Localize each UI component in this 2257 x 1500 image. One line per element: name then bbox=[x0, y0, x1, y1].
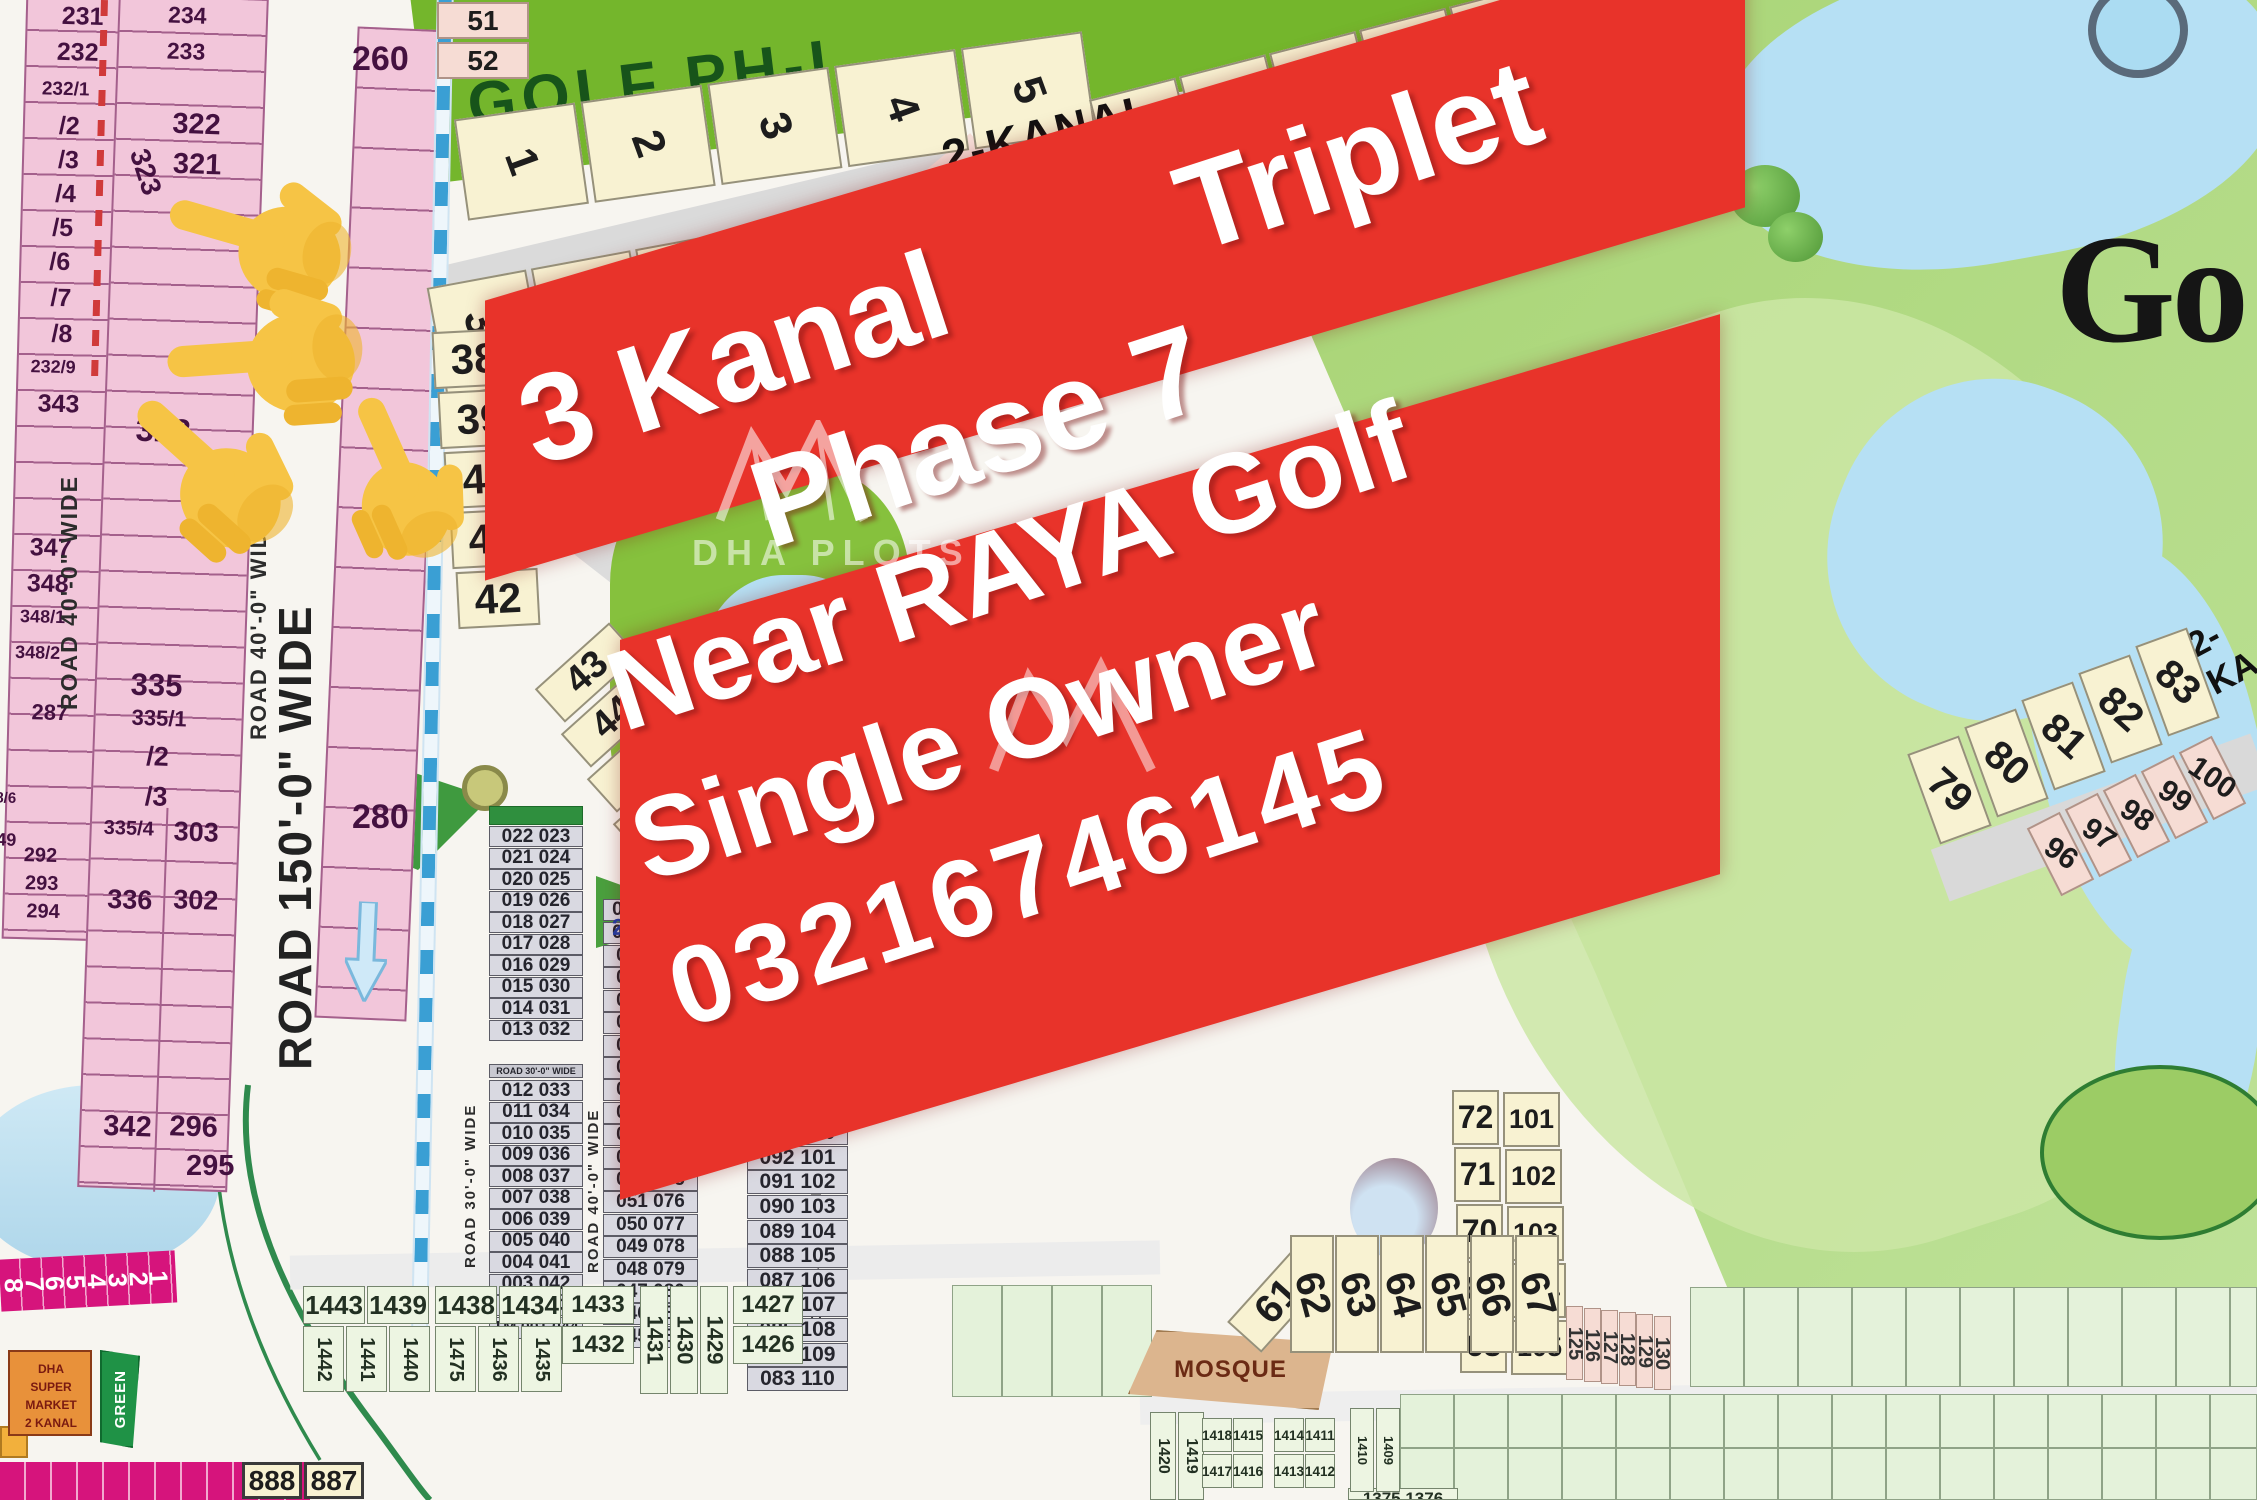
plot-cell: 1433 bbox=[562, 1286, 634, 1324]
plot-cell: 1415 bbox=[1233, 1418, 1263, 1452]
plot-cell: /3 bbox=[58, 148, 80, 174]
plot-cell: 1 bbox=[454, 103, 589, 221]
plot-cell: 005 040 bbox=[489, 1231, 583, 1252]
plot-cell: 231 bbox=[61, 4, 103, 30]
plot-cell: 011 034 bbox=[489, 1102, 583, 1123]
plot-cell: 348/2 bbox=[15, 643, 61, 662]
plot-cell: 101 bbox=[1503, 1092, 1560, 1147]
plot-cell: 051 076 bbox=[603, 1191, 698, 1213]
dha-plot-map: Go GOLF PH-I 231232232/1/2/3/4/5/6/7/823… bbox=[0, 0, 2257, 1500]
plot-cell: 006 039 bbox=[489, 1209, 583, 1230]
plot-cell: 014 031 bbox=[489, 998, 583, 1019]
plot-cell: 015 030 bbox=[489, 977, 583, 998]
plot-cell: 1409 bbox=[1376, 1408, 1400, 1492]
plot-cell: 102 bbox=[1505, 1149, 1562, 1204]
plot-cell: 64 bbox=[1380, 1235, 1424, 1353]
plot-cell: 089 104 bbox=[747, 1220, 848, 1244]
plot-cell: 083 110 bbox=[747, 1367, 848, 1391]
green-box: GREEN bbox=[100, 1350, 140, 1448]
plot-cell: 091 102 bbox=[747, 1170, 848, 1194]
road-label-40-left: ROAD 40'-0" WIDE bbox=[56, 380, 83, 710]
road-label-40-t2: ROAD 40'-0" WIDE bbox=[585, 1078, 602, 1273]
plot-cell: 010 035 bbox=[489, 1123, 583, 1144]
green-box-label: GREEN bbox=[112, 1370, 129, 1428]
plot-cell: 336 bbox=[107, 886, 153, 915]
plot-cell: /2 bbox=[59, 114, 81, 140]
plot-cell: 3 bbox=[707, 67, 842, 185]
plot-cell: /7 bbox=[50, 286, 72, 312]
plot-cell: 302 bbox=[173, 886, 219, 915]
plots-grid bbox=[952, 1285, 1152, 1397]
plot-cell: 1418 bbox=[1202, 1418, 1232, 1452]
plot-cell: 130 bbox=[1654, 1316, 1671, 1390]
plot-cell: 016 029 bbox=[489, 955, 583, 976]
plot-cell: 1416 bbox=[1233, 1454, 1263, 1488]
plot-cell: 020 025 bbox=[489, 869, 583, 890]
plot-cell: 1419 bbox=[1178, 1412, 1204, 1500]
plot-cell: 66 bbox=[1470, 1235, 1514, 1353]
plot-cell: 1426 bbox=[733, 1326, 803, 1364]
plots-grid bbox=[1690, 1287, 2257, 1387]
plot-cell: 2 bbox=[581, 85, 716, 203]
plot-cell: 1435 bbox=[521, 1326, 562, 1392]
road-label-30-t1: ROAD 30'-0" WIDE bbox=[462, 1078, 479, 1268]
plot-cell: 1431 bbox=[640, 1286, 668, 1394]
plot-cell: 017 028 bbox=[489, 934, 583, 955]
plot-cell: 293 bbox=[25, 873, 59, 894]
plot-cell: 232/1 bbox=[42, 79, 90, 99]
plot-cell: 888 bbox=[242, 1462, 302, 1499]
plot-cell: 009 036 bbox=[489, 1145, 583, 1166]
plot-cell: 1411 bbox=[1305, 1418, 1335, 1452]
plot-cell: 232/9 bbox=[30, 357, 76, 376]
plot-cell: 49 bbox=[0, 830, 16, 849]
dha-super-market: DHASUPERMARKET2 KANAL bbox=[8, 1350, 92, 1436]
plot-cell: 1 bbox=[147, 1256, 169, 1299]
plot-cell: 51 bbox=[437, 2, 529, 39]
plot-cell: 1427 bbox=[733, 1286, 803, 1324]
plot-cell: /6 bbox=[49, 250, 71, 276]
plot-cell: 050 077 bbox=[603, 1214, 698, 1236]
plot-cell: 303 bbox=[173, 818, 219, 847]
plot-label-295: 295 bbox=[186, 1152, 234, 1181]
plot-cell: 1432 bbox=[562, 1326, 634, 1364]
plot-cell: /3 bbox=[144, 783, 167, 811]
plot-cell: 1412 bbox=[1305, 1454, 1335, 1488]
plot-cell: 013 032 bbox=[489, 1020, 583, 1041]
plot-cell: 022 023 bbox=[489, 826, 583, 847]
plot-cell: 1420 bbox=[1150, 1412, 1176, 1500]
plot-cell: 1430 bbox=[670, 1286, 698, 1394]
plot-cell: 1436 bbox=[478, 1326, 519, 1392]
plot-cell: 52 bbox=[437, 42, 529, 79]
plot-cell: 1414 bbox=[1274, 1418, 1304, 1452]
plot-cell: 67 bbox=[1515, 1235, 1559, 1353]
plot-cell: 088 105 bbox=[747, 1244, 848, 1268]
plot-cell: 63 bbox=[1335, 1235, 1379, 1353]
plot-cell: 1413 bbox=[1274, 1454, 1304, 1488]
table1-header bbox=[489, 806, 583, 825]
plot-cell: 049 078 bbox=[603, 1236, 698, 1258]
plot-cell: 292 bbox=[24, 845, 58, 866]
plot-cell: 71 bbox=[1454, 1147, 1501, 1202]
plot-cell: 048 079 bbox=[603, 1259, 698, 1281]
strip-divider bbox=[153, 808, 168, 1192]
plot-cell: 004 041 bbox=[489, 1252, 583, 1273]
dha-plots-watermark-icon bbox=[712, 420, 872, 525]
plot-cell: 1439 bbox=[367, 1286, 429, 1324]
plot-cell: 65 bbox=[1425, 1235, 1469, 1353]
plot-cell: 232 bbox=[57, 40, 99, 66]
plot-cell: 294 bbox=[26, 901, 60, 922]
plot-cell: 887 bbox=[304, 1462, 364, 1499]
plot-cell: 019 026 bbox=[489, 891, 583, 912]
plot-cell: 012 033 bbox=[489, 1080, 583, 1101]
plot-label-280: 280 bbox=[352, 800, 409, 834]
plot-cell: 335/1 bbox=[131, 707, 187, 731]
plot-cell: 1440 bbox=[389, 1326, 430, 1392]
plot-cell: 62 bbox=[1290, 1235, 1334, 1353]
dha-plots-watermark-icon bbox=[985, 648, 1160, 788]
dha-plots-watermark-text: DHA PLOTS bbox=[692, 532, 971, 574]
plot-cell: 1438 bbox=[435, 1286, 497, 1324]
plot-cell: /2 bbox=[146, 743, 169, 771]
tee-circle bbox=[462, 765, 508, 811]
plot-cell: 8/6 bbox=[0, 790, 16, 806]
plot-cell: 1429 bbox=[700, 1286, 728, 1394]
plot-cell: 007 038 bbox=[489, 1188, 583, 1209]
plot-cell: 1475 bbox=[435, 1326, 476, 1392]
road-label-150: ROAD 150'-0" WIDE bbox=[268, 470, 322, 1070]
plot-cell: 1441 bbox=[346, 1326, 387, 1392]
market-label-line: 2 KANAL bbox=[12, 1414, 90, 1431]
plot-cell: 72 bbox=[1452, 1090, 1499, 1145]
plot-cell: 1434 bbox=[499, 1286, 561, 1324]
plot-cell: 233 bbox=[167, 39, 206, 63]
magenta-plot-band: 87654321 bbox=[0, 1250, 177, 1311]
plot-cell: 021 024 bbox=[489, 848, 583, 869]
plot-cell: 1442 bbox=[303, 1326, 344, 1392]
golf-big-text: Go bbox=[2055, 200, 2245, 379]
plot-label-260: 260 bbox=[352, 42, 409, 76]
market-label-line: DHA bbox=[12, 1360, 90, 1377]
down-arrow-icon bbox=[343, 901, 389, 1003]
plot-cell: /5 bbox=[52, 216, 74, 242]
plot-cell: 1410 bbox=[1350, 1408, 1374, 1492]
plot-cell: 335/4 bbox=[103, 818, 154, 840]
plot-cell: 234 bbox=[168, 3, 207, 27]
plot-cell: /8 bbox=[51, 322, 73, 348]
market-label-line: SUPER bbox=[12, 1378, 90, 1395]
plot-cell: 342 bbox=[103, 1112, 152, 1143]
plots-grid bbox=[1400, 1394, 2257, 1500]
mosque-area-label: MOSQUE bbox=[1174, 1356, 1287, 1384]
plot-cell: 1443 bbox=[303, 1286, 365, 1324]
plot-cell: 296 bbox=[169, 1112, 218, 1143]
plot-cell: 090 103 bbox=[747, 1195, 848, 1219]
plot-cell: 008 037 bbox=[489, 1166, 583, 1187]
plot-cell: 42 bbox=[456, 568, 541, 629]
table1-road-label: ROAD 30'-0" WIDE bbox=[489, 1064, 583, 1078]
plot-cell: 018 027 bbox=[489, 912, 583, 933]
plot-cell: 335 bbox=[130, 669, 183, 702]
plot-cell: /4 bbox=[55, 182, 77, 208]
plot-cell: 1417 bbox=[1202, 1454, 1232, 1488]
market-label-line: MARKET bbox=[12, 1396, 90, 1413]
